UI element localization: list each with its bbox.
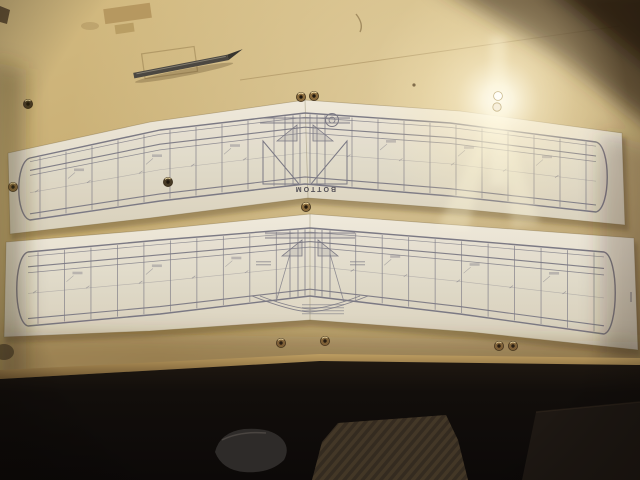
scene: BOTTOM	[0, 0, 640, 480]
vignette	[0, 0, 640, 480]
photo-of-wing-plans: BOTTOM	[0, 0, 640, 480]
